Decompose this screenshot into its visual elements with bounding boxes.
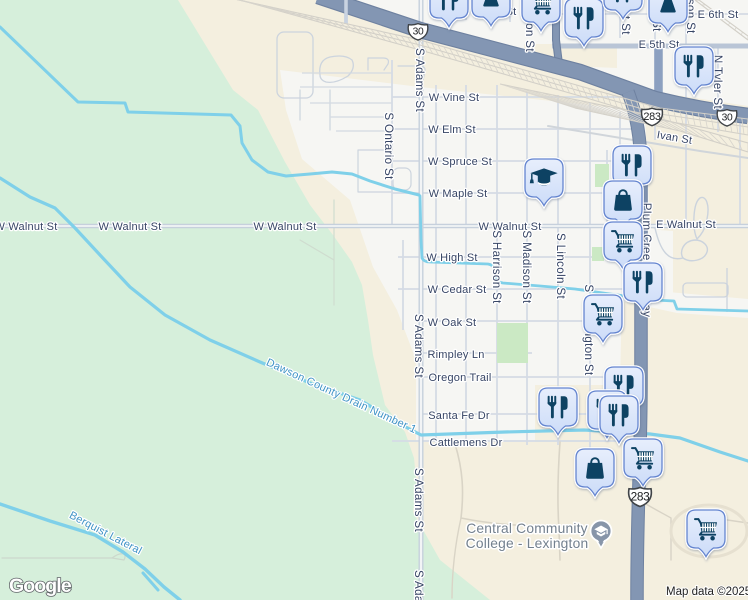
- svg-text:Central Community: Central Community: [466, 521, 587, 536]
- svg-text:W Walnut St: W Walnut St: [254, 221, 317, 233]
- svg-text:30: 30: [413, 27, 424, 38]
- svg-text:S Adams St: S Adams St: [412, 570, 425, 600]
- svg-text:S Madison St: S Madison St: [520, 230, 533, 304]
- svg-text:S Ontario St: S Ontario St: [382, 112, 395, 180]
- svg-text:S Adams St: S Adams St: [412, 314, 425, 379]
- svg-text:W Oak St: W Oak St: [428, 317, 477, 329]
- svg-text:W Cedar St: W Cedar St: [428, 284, 487, 296]
- svg-text:W High St: W High St: [426, 252, 477, 264]
- svg-text:S Lincoln St: S Lincoln St: [554, 233, 567, 299]
- svg-text:W Maple St: W Maple St: [429, 188, 488, 200]
- svg-text:E 5th St: E 5th St: [639, 39, 680, 51]
- svg-text:W Walnut St: W Walnut St: [0, 221, 57, 233]
- svg-text:E 6th St: E 6th St: [698, 9, 739, 21]
- svg-text:W Vine St: W Vine St: [429, 92, 480, 104]
- svg-text:W Walnut St: W Walnut St: [99, 221, 162, 233]
- svg-text:Oregon Trail: Oregon Trail: [429, 372, 492, 384]
- svg-text:College - Lexington: College - Lexington: [466, 536, 589, 551]
- svg-text:283: 283: [643, 111, 660, 123]
- svg-text:Google: Google: [9, 575, 72, 597]
- svg-text:Cattlemens Dr: Cattlemens Dr: [430, 437, 503, 449]
- svg-text:W Elm St: W Elm St: [428, 124, 475, 136]
- svg-text:30: 30: [722, 113, 733, 124]
- svg-text:S Adams St: S Adams St: [413, 48, 426, 113]
- svg-text:W Spruce St: W Spruce St: [428, 156, 492, 168]
- svg-text:S Harrison St: S Harrison St: [490, 230, 503, 304]
- svg-text:Rimpley Ln: Rimpley Ln: [427, 349, 484, 361]
- svg-text:E Walnut St: E Walnut St: [656, 219, 716, 231]
- svg-text:S Adams St: S Adams St: [412, 468, 425, 533]
- svg-text:Map data ©2025: Map data ©2025: [666, 586, 748, 598]
- svg-text:Santa Fe Dr: Santa Fe Dr: [428, 410, 490, 422]
- svg-text:283: 283: [631, 489, 650, 503]
